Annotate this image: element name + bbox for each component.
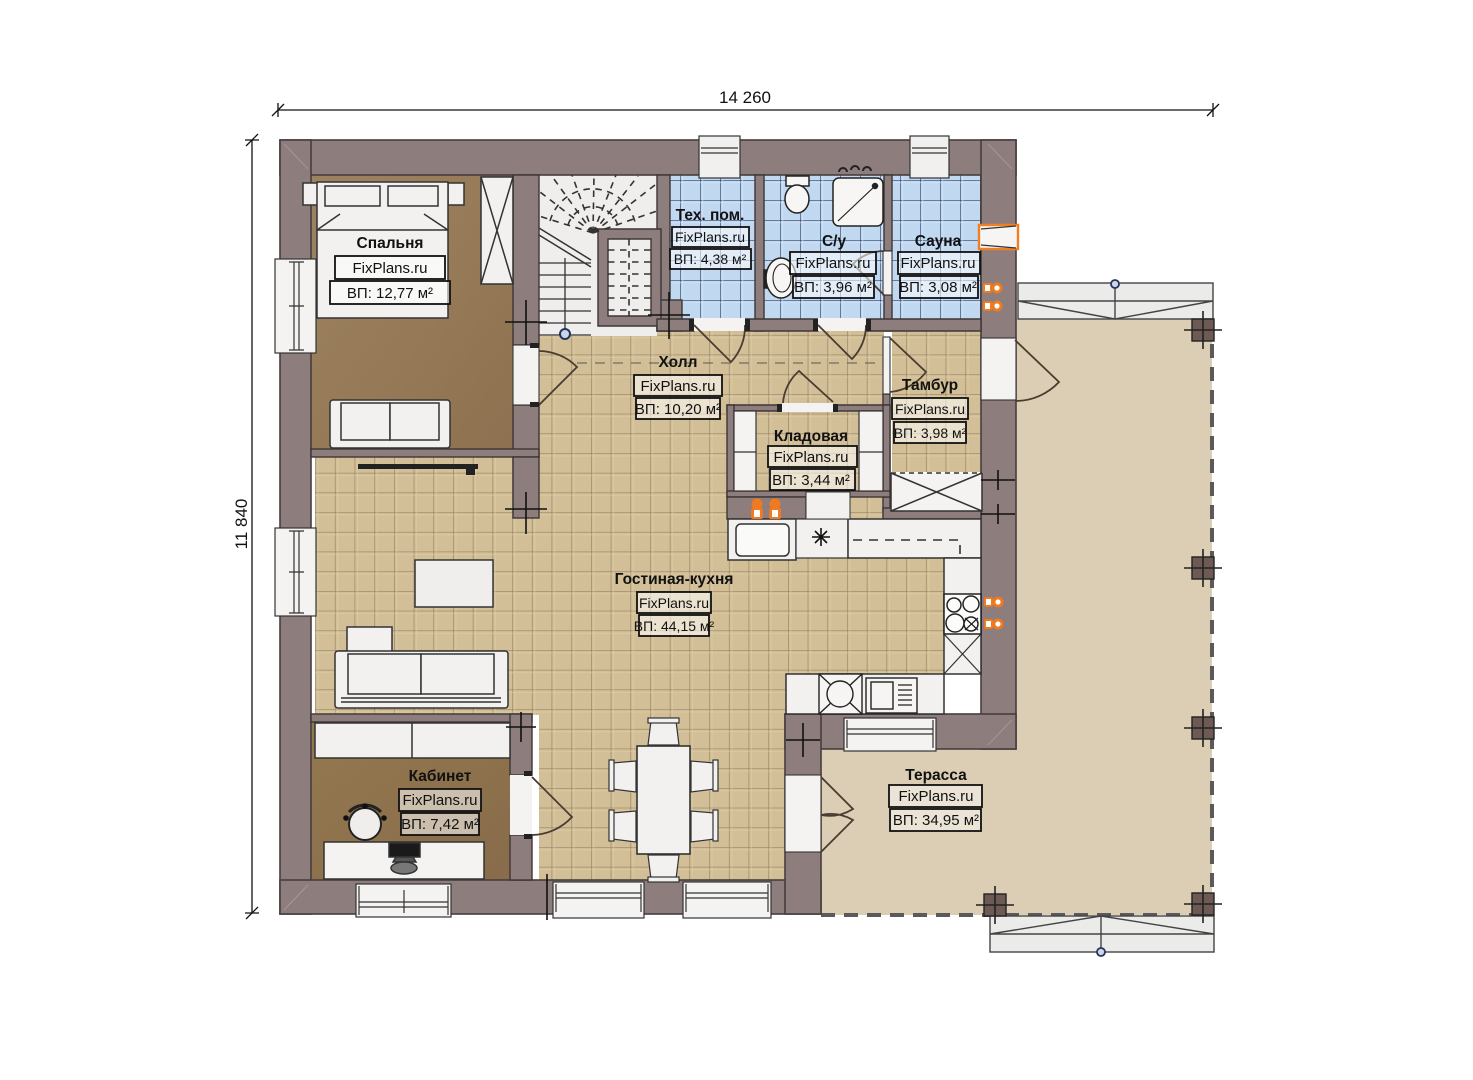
svg-text:Спальня: Спальня [357, 235, 424, 252]
svg-text:Гостиная-кухня: Гостиная-кухня [615, 571, 734, 588]
svg-text:Сауна: Сауна [915, 233, 962, 250]
svg-text:Тех. пом.: Тех. пом. [676, 207, 745, 224]
svg-text:ВП: 12,77 м²: ВП: 12,77 м² [347, 285, 433, 302]
svg-text:FixPlans.ru: FixPlans.ru [795, 255, 870, 272]
svg-text:Холл: Холл [659, 354, 698, 371]
svg-text:14 260: 14 260 [719, 88, 771, 107]
svg-text:FixPlans.ru: FixPlans.ru [675, 229, 745, 245]
svg-text:FixPlans.ru: FixPlans.ru [895, 401, 965, 417]
svg-text:11 840: 11 840 [232, 499, 251, 550]
svg-text:FixPlans.ru: FixPlans.ru [639, 595, 709, 611]
svg-text:ВП: 3,44 м²: ВП: 3,44 м² [772, 472, 850, 489]
svg-text:ВП: 3,08 м²: ВП: 3,08 м² [899, 279, 977, 296]
svg-text:ВП: 3,96 м²: ВП: 3,96 м² [794, 279, 872, 296]
svg-text:ВП: 34,95 м²: ВП: 34,95 м² [893, 812, 979, 829]
svg-text:ВП: 3,98 м²: ВП: 3,98 м² [894, 425, 967, 441]
svg-text:ВП: 7,42 м²: ВП: 7,42 м² [401, 816, 479, 833]
svg-text:ВП: 44,15 м²: ВП: 44,15 м² [634, 618, 715, 634]
svg-text:ВП: 4,38 м²: ВП: 4,38 м² [674, 251, 747, 267]
svg-text:Терасса: Терасса [905, 767, 967, 784]
svg-text:FixPlans.ru: FixPlans.ru [898, 788, 973, 805]
svg-text:FixPlans.ru: FixPlans.ru [773, 449, 848, 466]
svg-text:Тамбур: Тамбур [902, 377, 958, 394]
svg-text:FixPlans.ru: FixPlans.ru [402, 792, 477, 809]
svg-text:FixPlans.ru: FixPlans.ru [900, 255, 975, 272]
svg-text:ВП: 10,20 м²: ВП: 10,20 м² [635, 401, 721, 418]
svg-text:Кабинет: Кабинет [409, 768, 472, 785]
svg-text:FixPlans.ru: FixPlans.ru [640, 378, 715, 395]
svg-text:Кладовая: Кладовая [774, 428, 848, 445]
svg-text:С/у: С/у [822, 233, 847, 250]
svg-text:FixPlans.ru: FixPlans.ru [352, 260, 427, 277]
